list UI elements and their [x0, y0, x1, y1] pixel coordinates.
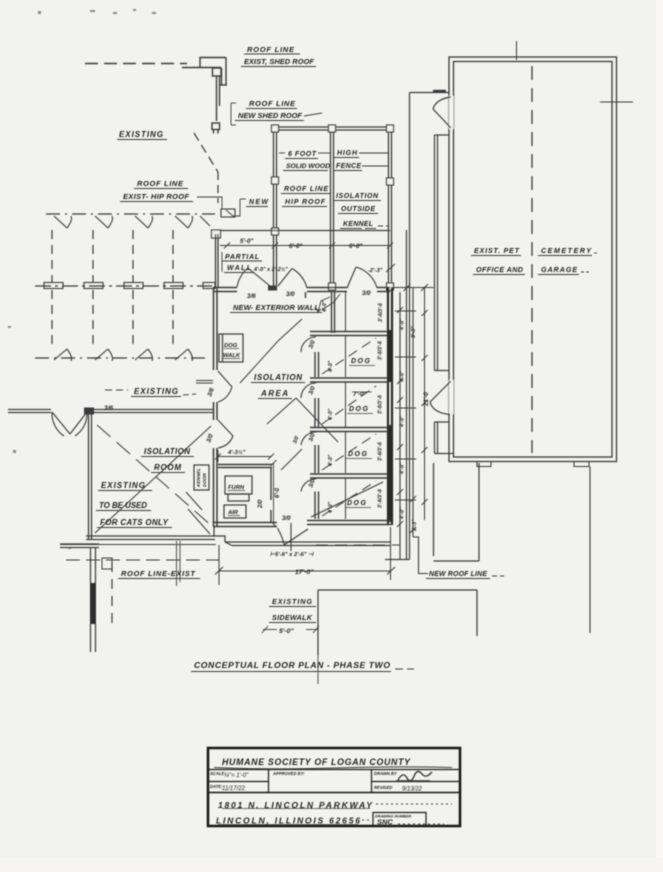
svg-text:HIGH: HIGH: [337, 150, 358, 157]
svg-text:3'-6/3'-6: 3'-6/3'-6: [378, 489, 384, 508]
svg-text:⊢5'-6" x 2'-6" ⊣: ⊢5'-6" x 2'-6" ⊣: [270, 551, 314, 558]
svg-text:6 FOOT: 6 FOOT: [288, 151, 317, 158]
svg-text:KENNEL: KENNEL: [343, 221, 373, 228]
svg-text:ISOLATION: ISOLATION: [336, 193, 379, 200]
svg-text:5'-0": 5'-0": [240, 238, 253, 245]
svg-text:ISOLATION: ISOLATION: [254, 373, 302, 382]
svg-text:ROOM: ROOM: [154, 463, 181, 472]
svg-text:EXISTING: EXISTING: [119, 130, 163, 139]
svg-text:NEW- EXTERIOR WALL: NEW- EXTERIOR WALL: [233, 303, 319, 312]
svg-text:SIDEWALK: SIDEWALK: [272, 613, 313, 622]
svg-text:¼"= 1'-0": ¼"= 1'-0": [224, 773, 249, 779]
svg-text:FENCE: FENCE: [336, 163, 361, 170]
svg-text:SOLID WOOD: SOLID WOOD: [286, 163, 330, 170]
svg-text:APPROVED BY:: APPROVED BY:: [272, 771, 305, 776]
svg-text:4'-0": 4'-0": [400, 318, 406, 331]
svg-text:NEW: NEW: [249, 199, 269, 206]
svg-text:EXISTING: EXISTING: [101, 481, 145, 490]
svg-text:DOG: DOG: [224, 343, 238, 349]
svg-text:4'-0": 4'-0": [322, 300, 328, 313]
svg-text:EXISTING: EXISTING: [134, 387, 178, 396]
svg-text:3/0: 3/0: [286, 291, 295, 298]
svg-text:EXIST, SHED ROOF: EXIST, SHED ROOF: [244, 57, 314, 66]
svg-text:ROOF LINE: ROOF LINE: [284, 186, 328, 193]
svg-text:REVISED: REVISED: [374, 785, 392, 790]
svg-text:4'-0": 4'-0": [400, 462, 406, 475]
svg-text:TO BE USED: TO BE USED: [99, 501, 147, 510]
svg-text:17'-0": 17'-0": [295, 569, 314, 576]
svg-text:3'-6/3'-6: 3'-6/3'-6: [378, 442, 384, 461]
svg-text:KENNEL: KENNEL: [196, 468, 201, 487]
svg-text:4'-0": 4'-0": [328, 360, 334, 373]
svg-text:4'-3½": 4'-3½": [227, 449, 246, 456]
svg-text:-2'-3": -2'-3": [368, 268, 383, 274]
svg-text:4'-0": 4'-0": [328, 408, 334, 421]
svg-text:4'-0": 4'-0": [328, 454, 334, 467]
svg-text:9/13/22: 9/13/22: [402, 787, 423, 793]
svg-text:3'-6/3'-6: 3'-6/3'-6: [378, 341, 384, 360]
svg-text:NEW SHED ROOF: NEW SHED ROOF: [238, 111, 302, 120]
svg-text:ROOF LINE: ROOF LINE: [249, 99, 296, 108]
svg-text:11/17/22: 11/17/22: [222, 786, 246, 792]
svg-text:ROOF LINE: ROOF LINE: [247, 45, 295, 54]
svg-text:5'-0": 5'-0": [279, 628, 294, 635]
svg-text:3'-6/3'-6: 3'-6/3'-6: [378, 395, 384, 414]
svg-text:EXIST- HIP ROOF: EXIST- HIP ROOF: [123, 192, 189, 201]
svg-text:3'-6/3'-6: 3'-6/3'-6: [378, 303, 384, 322]
svg-text:6'-0": 6'-0": [349, 243, 362, 250]
svg-text:3/0: 3/0: [282, 515, 291, 522]
svg-text:4'-0": 4'-0": [400, 370, 406, 383]
svg-text:LINCOLN, ILLINOIS 62656: LINCOLN, ILLINOIS 62656: [216, 816, 360, 826]
svg-text:CONCEPTUAL FLOOR PLAN - PHASE: CONCEPTUAL FLOOR PLAN - PHASE TWO: [194, 660, 390, 670]
svg-text:6'-0: 6'-0: [275, 487, 281, 498]
svg-text:4'-0" x 2'-2½": 4'-0" x 2'-2½": [253, 266, 288, 273]
svg-text:NEW ROOF LINE: NEW ROOF LINE: [429, 571, 487, 578]
svg-text:ROOF LINE: ROOF LINE: [137, 179, 184, 188]
svg-text:EXISTING: EXISTING: [272, 597, 312, 606]
svg-text:FOR CATS ONLY: FOR CATS ONLY: [100, 518, 169, 527]
svg-text:AIR: AIR: [227, 510, 239, 516]
svg-text:HIP ROOF: HIP ROOF: [285, 199, 326, 206]
svg-text:WALK: WALK: [223, 353, 241, 359]
svg-text:DOG: DOG: [348, 451, 368, 458]
svg-text:21'-0: 21'-0: [423, 392, 430, 407]
svg-text:EXIST. PET: EXIST. PET: [474, 246, 520, 255]
svg-text:DRAWN BY: DRAWN BY: [374, 771, 398, 776]
svg-text:2/0: 2/0: [258, 499, 264, 509]
svg-text:3/0: 3/0: [362, 290, 371, 297]
svg-text:6'-0": 6'-0": [289, 243, 302, 250]
svg-text:9'-3": 9'-3": [411, 326, 417, 338]
svg-text:DOG: DOG: [351, 358, 371, 365]
svg-text:2'-3": 2'-3": [412, 519, 418, 532]
svg-text:FURN: FURN: [228, 485, 245, 491]
svg-text:HUMANE SOCIETY OF LOGAN COUNTY: HUMANE SOCIETY OF LOGAN COUNTY: [222, 757, 411, 767]
svg-text:4'-0": 4'-0": [400, 415, 406, 428]
svg-text:3/6: 3/6: [247, 293, 256, 300]
svg-text:PARTIAL: PARTIAL: [225, 254, 259, 261]
svg-text:OUTSIDE: OUTSIDE: [341, 206, 375, 213]
svg-text:4'-0": 4'-0": [328, 501, 334, 514]
svg-text:3/6: 3/6: [104, 405, 113, 412]
svg-text:ISOLATION: ISOLATION: [144, 447, 190, 456]
svg-text:DOG: DOG: [347, 500, 367, 507]
svg-text:ROOF LINE-EXIST: ROOF LINE-EXIST: [121, 569, 196, 578]
svg-text:DOOR: DOOR: [202, 473, 207, 487]
svg-text:DOG: DOG: [349, 406, 369, 413]
svg-text:SNC: SNC: [377, 818, 393, 827]
svg-text:OFFICE AND: OFFICE AND: [476, 265, 523, 274]
svg-text:GARAGE: GARAGE: [541, 265, 577, 274]
svg-text:4'-0": 4'-0": [400, 507, 406, 520]
